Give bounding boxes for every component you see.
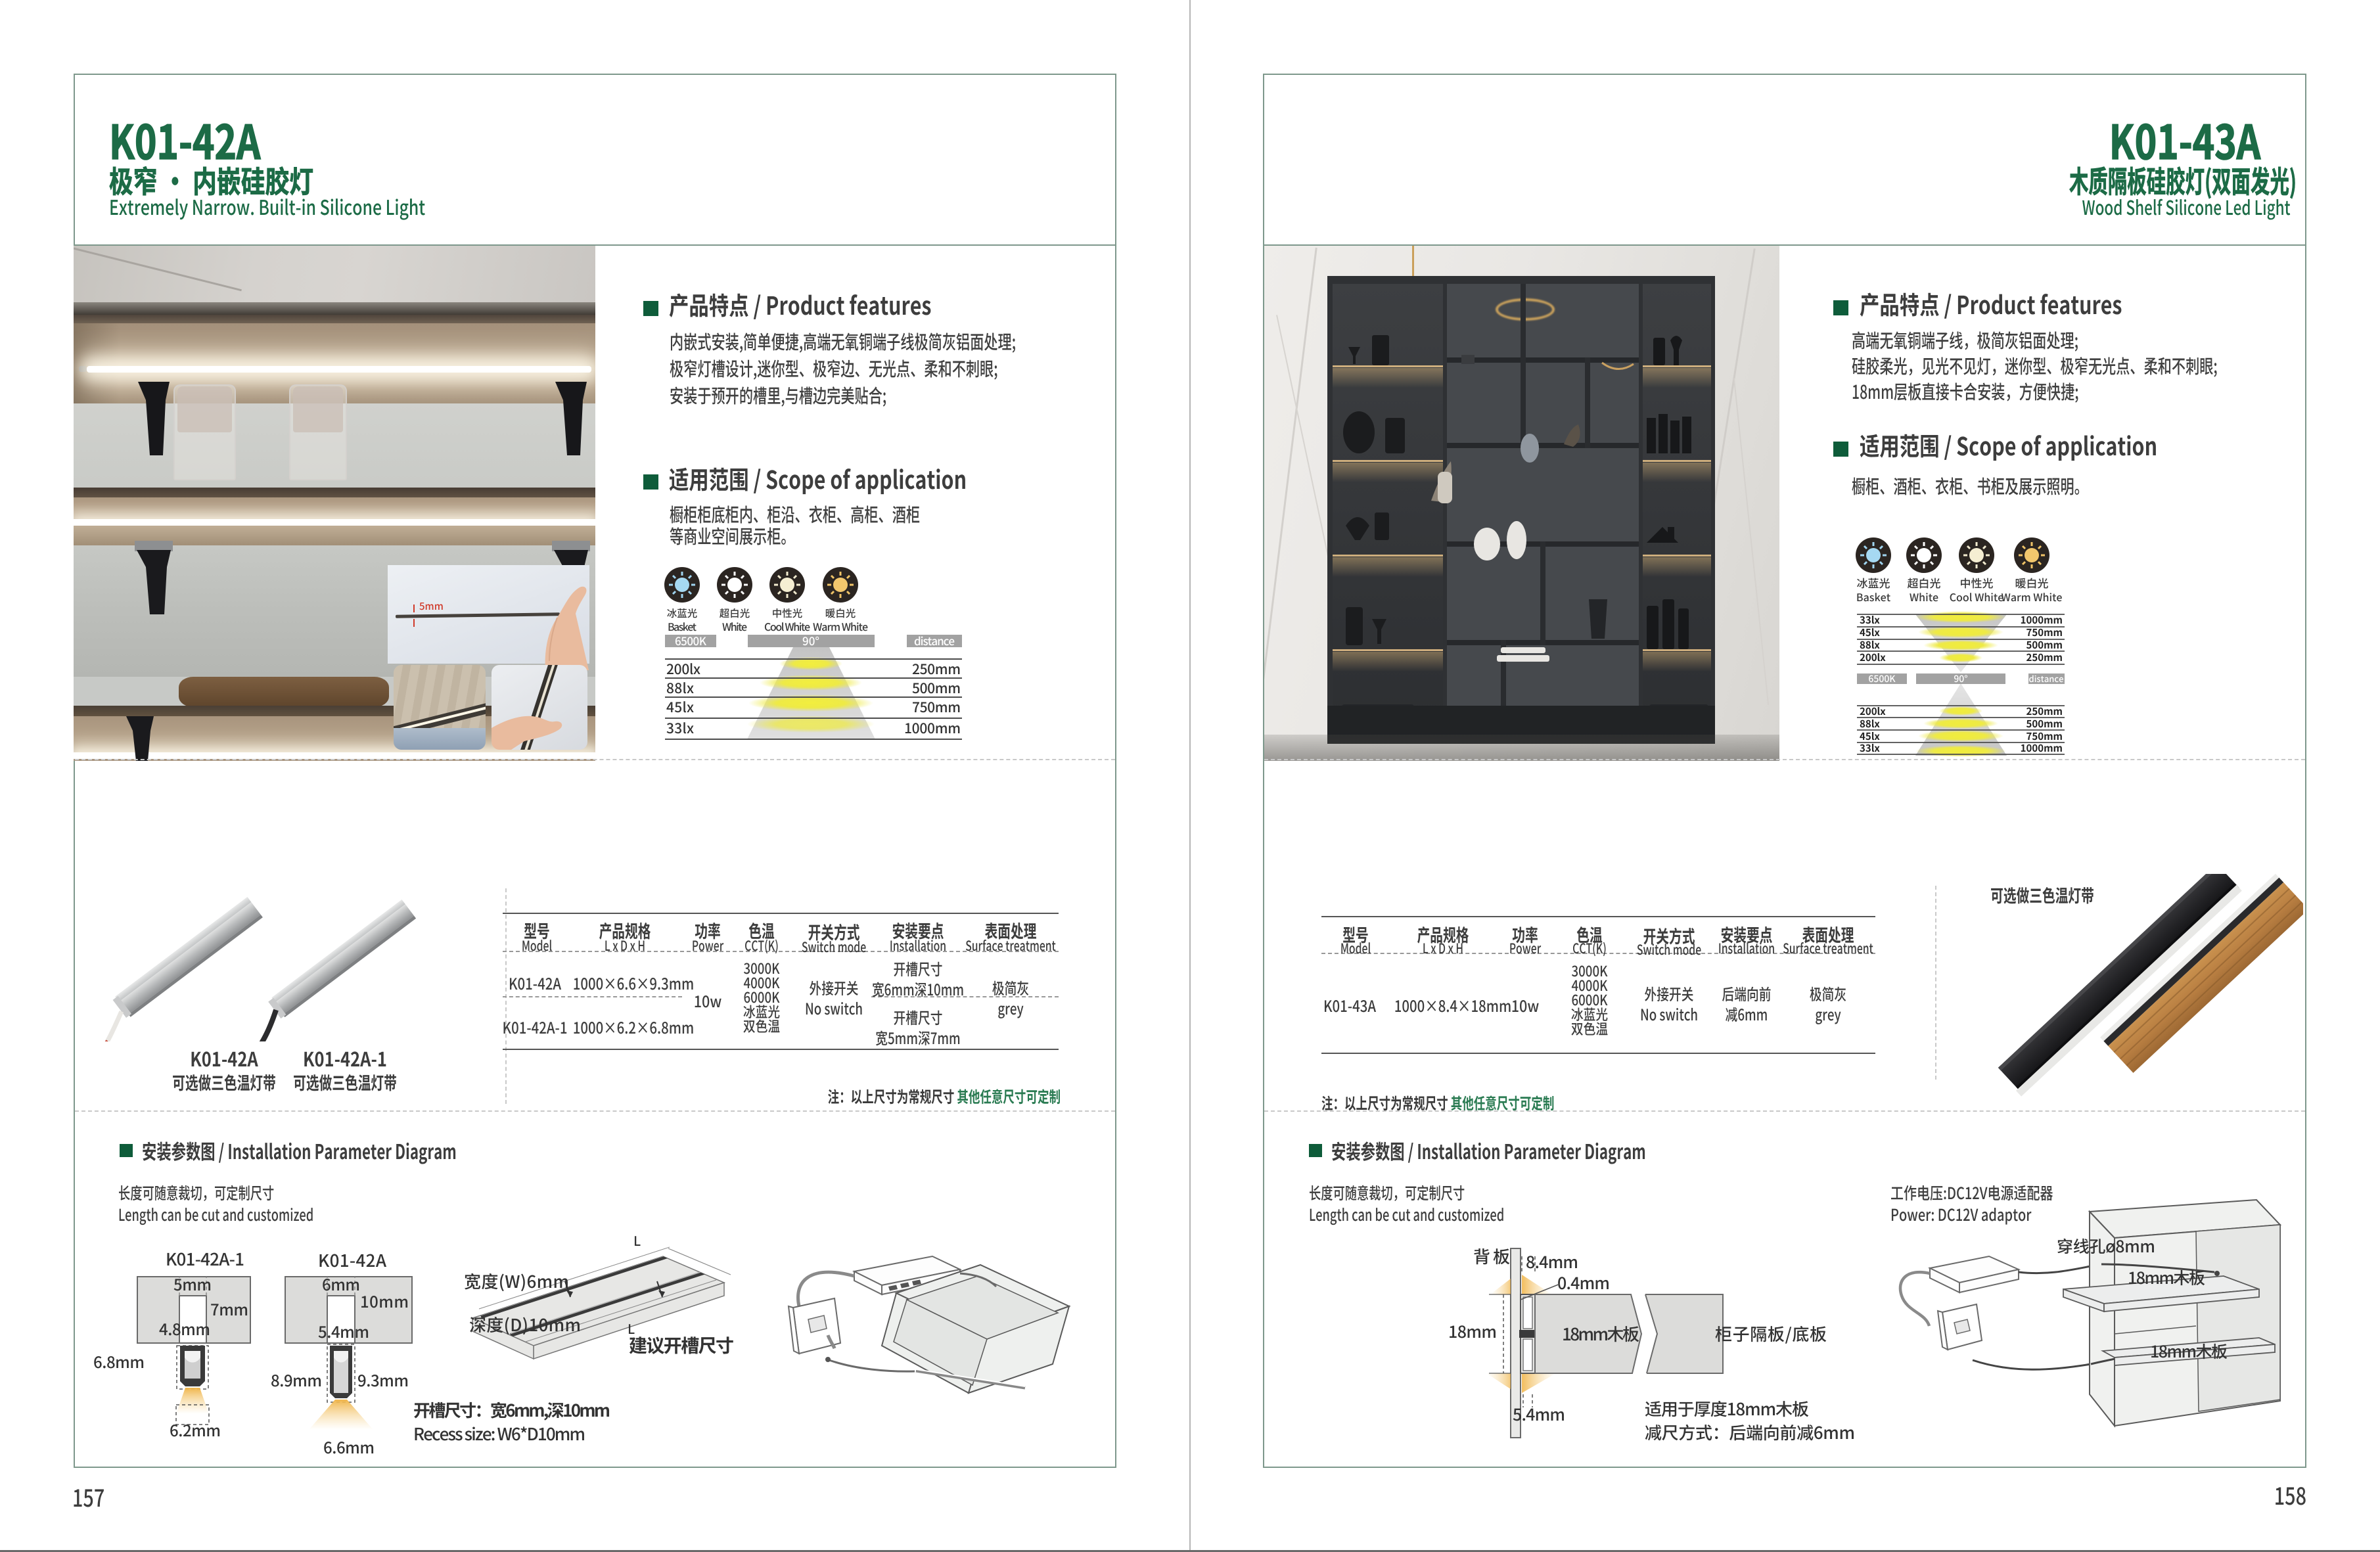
svg-text:L: L	[633, 1235, 641, 1250]
svg-text:Basket: Basket	[1856, 589, 1891, 605]
svg-text:18mm木板: 18mm木板	[2150, 1339, 2228, 1363]
svg-text:750mm: 750mm	[912, 697, 961, 717]
svg-text:10mm: 10mm	[360, 1289, 409, 1312]
svg-text:9.3mm: 9.3mm	[357, 1368, 409, 1391]
svg-text:distance: distance	[914, 632, 955, 649]
svg-text:K01-42A-1: K01-42A-1	[166, 1246, 244, 1271]
svg-text:Cool White: Cool White	[1950, 589, 2004, 605]
svg-text:33lx: 33lx	[1860, 613, 1880, 627]
svg-text:88lx: 88lx	[1860, 638, 1880, 652]
svg-text:开槽尺寸：宽6mm,深10mm: 开槽尺寸：宽6mm,深10mm	[413, 1398, 610, 1422]
svg-text:18mm木板: 18mm木板	[1562, 1321, 1639, 1346]
svg-text:90°: 90°	[1954, 672, 1967, 685]
svg-text:200lx: 200lx	[1860, 650, 1886, 664]
svg-text:500mm: 500mm	[912, 678, 961, 698]
svg-text:250mm: 250mm	[2026, 650, 2063, 664]
svg-text:88lx: 88lx	[666, 678, 694, 698]
svg-text:柜子隔板/底板: 柜子隔板/底板	[1715, 1321, 1827, 1346]
svg-text:90°: 90°	[802, 632, 819, 649]
svg-text:5mm: 5mm	[173, 1272, 212, 1295]
svg-text:200lx: 200lx	[1860, 704, 1886, 718]
svg-text:穿线孔ø8mm: 穿线孔ø8mm	[2057, 1234, 2155, 1258]
svg-text:宽度(W)6mm: 宽度(W)6mm	[464, 1269, 569, 1293]
svg-text:8.4mm: 8.4mm	[1526, 1250, 1578, 1273]
svg-text:200lx: 200lx	[666, 659, 700, 679]
svg-text:5mm: 5mm	[419, 599, 444, 613]
svg-text:250mm: 250mm	[912, 659, 961, 679]
svg-text:18mm木板: 18mm木板	[2128, 1266, 2205, 1289]
svg-text:500mm: 500mm	[2026, 717, 2063, 731]
svg-text:6mm: 6mm	[322, 1272, 360, 1295]
svg-text:500mm: 500mm	[2026, 638, 2063, 652]
svg-text:88lx: 88lx	[1860, 717, 1880, 731]
svg-text:White: White	[1910, 589, 1938, 605]
svg-text:distance: distance	[2029, 672, 2064, 685]
svg-text:6.8mm: 6.8mm	[93, 1350, 145, 1373]
svg-text:1000mm: 1000mm	[2021, 613, 2063, 627]
svg-text:K01-42A: K01-42A	[318, 1248, 387, 1272]
svg-text:减尺方式：后端向前减6mm: 减尺方式：后端向前减6mm	[1645, 1420, 1855, 1444]
svg-text:750mm: 750mm	[2026, 626, 2063, 639]
svg-text:4.8mm: 4.8mm	[159, 1317, 210, 1340]
svg-text:250mm: 250mm	[2026, 704, 2063, 718]
svg-text:45lx: 45lx	[666, 697, 694, 717]
svg-text:0.4mm: 0.4mm	[1557, 1271, 1610, 1294]
svg-text:适用于厚度18mm木板: 适用于厚度18mm木板	[1645, 1396, 1809, 1421]
svg-text:背板: 背板	[1473, 1244, 1510, 1268]
svg-text:18mm: 18mm	[1448, 1319, 1497, 1343]
svg-text:5.4mm: 5.4mm	[1513, 1402, 1565, 1426]
svg-text:6.6mm: 6.6mm	[323, 1435, 375, 1458]
svg-text:1000mm: 1000mm	[2021, 741, 2063, 755]
svg-text:1000mm: 1000mm	[904, 718, 961, 738]
svg-text:33lx: 33lx	[666, 718, 694, 738]
svg-text:5.4mm: 5.4mm	[318, 1319, 369, 1342]
svg-text:深度(D)10mm: 深度(D)10mm	[469, 1312, 581, 1336]
svg-text:6500K: 6500K	[1868, 672, 1896, 685]
svg-text:33lx: 33lx	[1860, 741, 1880, 755]
svg-text:45lx: 45lx	[1860, 626, 1880, 639]
svg-text:8.9mm: 8.9mm	[271, 1368, 322, 1391]
svg-text:建议开槽尺寸: 建议开槽尺寸	[629, 1332, 734, 1358]
svg-text:Recess size: W6*D10mm: Recess size: W6*D10mm	[413, 1421, 585, 1446]
svg-text:Warm White: Warm White	[2002, 589, 2063, 605]
svg-text:6500K: 6500K	[675, 632, 707, 649]
svg-text:6.2mm: 6.2mm	[170, 1418, 221, 1441]
svg-text:7mm: 7mm	[210, 1297, 248, 1320]
